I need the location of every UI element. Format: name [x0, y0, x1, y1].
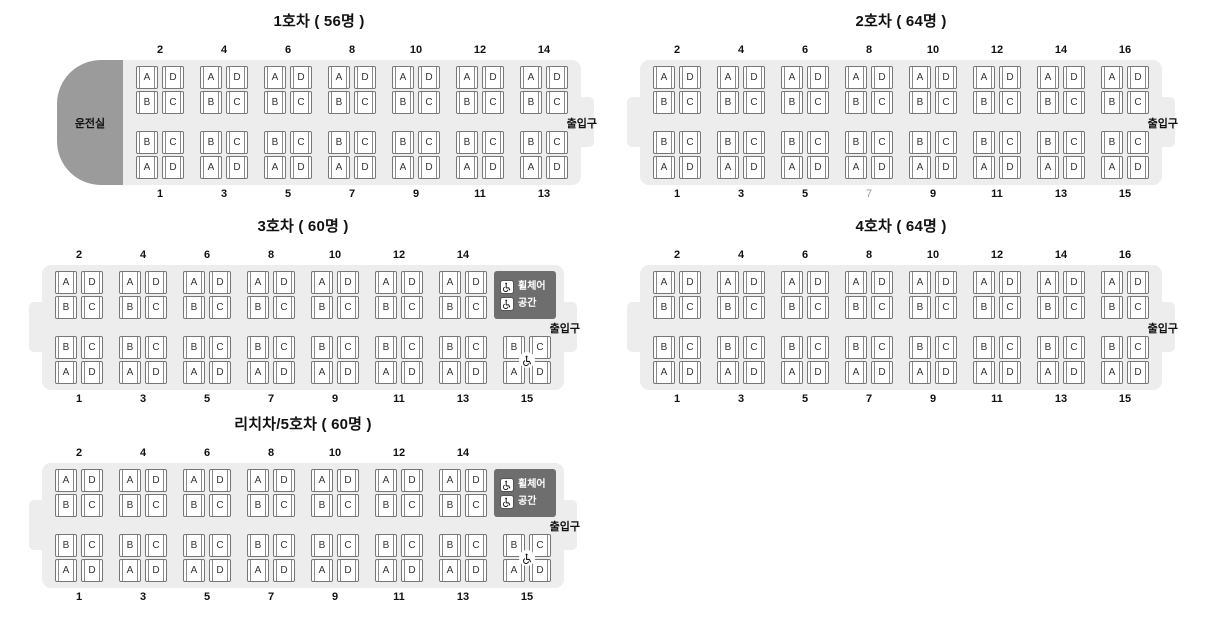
seat[interactable]: D — [465, 559, 487, 582]
seat[interactable]: B — [1101, 296, 1123, 319]
seat[interactable]: A — [1037, 66, 1059, 89]
seat[interactable]: B — [1037, 336, 1059, 359]
seat[interactable]: A — [845, 66, 867, 89]
seat[interactable]: B — [247, 336, 269, 359]
seat[interactable]: A — [439, 271, 461, 294]
seat[interactable]: A — [456, 156, 478, 179]
seat[interactable]: D — [871, 361, 893, 384]
seat[interactable]: A — [183, 271, 205, 294]
seat[interactable]: A — [653, 66, 675, 89]
seat[interactable]: D — [401, 469, 423, 492]
seat[interactable]: C — [209, 534, 231, 557]
seat[interactable]: B — [392, 91, 414, 114]
seat[interactable]: B — [328, 91, 350, 114]
seat[interactable]: C — [273, 296, 295, 319]
seat[interactable]: A — [973, 361, 995, 384]
seat[interactable]: D — [999, 361, 1021, 384]
seat[interactable]: B — [909, 336, 931, 359]
seat[interactable]: C — [482, 91, 504, 114]
seat[interactable]: C — [1063, 296, 1085, 319]
seat[interactable]: B — [264, 91, 286, 114]
seat[interactable]: D — [209, 361, 231, 384]
seat[interactable]: B — [909, 131, 931, 154]
seat[interactable]: A — [375, 559, 397, 582]
seat[interactable]: C — [209, 296, 231, 319]
seat[interactable]: C — [935, 296, 957, 319]
seat[interactable]: A — [845, 271, 867, 294]
seat[interactable]: B — [781, 91, 803, 114]
seat[interactable]: D — [273, 361, 295, 384]
seat[interactable]: C — [354, 131, 376, 154]
seat[interactable]: A — [1037, 156, 1059, 179]
seat[interactable]: A — [520, 156, 542, 179]
seat[interactable]: C — [743, 131, 765, 154]
seat[interactable]: A — [520, 66, 542, 89]
seat[interactable]: C — [999, 336, 1021, 359]
seat[interactable]: A — [439, 469, 461, 492]
seat[interactable]: A — [439, 361, 461, 384]
seat[interactable]: D — [743, 156, 765, 179]
seat[interactable]: D — [226, 156, 248, 179]
seat[interactable]: A — [247, 559, 269, 582]
seat[interactable]: C — [465, 296, 487, 319]
seat[interactable]: C — [418, 91, 440, 114]
seat[interactable]: D — [743, 361, 765, 384]
seat[interactable]: A — [200, 66, 222, 89]
seat[interactable]: C — [209, 336, 231, 359]
seat[interactable]: B — [119, 494, 141, 517]
seat[interactable]: A — [717, 66, 739, 89]
seat[interactable]: B — [200, 131, 222, 154]
seat[interactable]: B — [136, 91, 158, 114]
seat[interactable]: D — [290, 66, 312, 89]
seat[interactable]: D — [935, 361, 957, 384]
seat[interactable]: C — [743, 336, 765, 359]
seat[interactable]: B — [439, 296, 461, 319]
seat[interactable]: B — [781, 296, 803, 319]
seat[interactable]: B — [973, 131, 995, 154]
seat[interactable]: B — [1101, 336, 1123, 359]
seat[interactable]: D — [81, 361, 103, 384]
seat[interactable]: B — [781, 131, 803, 154]
seat[interactable]: C — [807, 131, 829, 154]
seat[interactable]: B — [1101, 131, 1123, 154]
seat[interactable]: A — [119, 469, 141, 492]
seat[interactable]: A — [328, 156, 350, 179]
seat[interactable]: C — [418, 131, 440, 154]
seat[interactable]: D — [465, 271, 487, 294]
seat[interactable]: C — [807, 336, 829, 359]
seat[interactable]: C — [482, 131, 504, 154]
seat[interactable]: D — [354, 156, 376, 179]
seat[interactable]: C — [465, 336, 487, 359]
seat[interactable]: A — [1101, 156, 1123, 179]
seat[interactable]: A — [653, 271, 675, 294]
seat[interactable]: C — [209, 494, 231, 517]
seat[interactable]: C — [337, 336, 359, 359]
seat[interactable]: D — [999, 156, 1021, 179]
seat[interactable]: A — [973, 271, 995, 294]
seat[interactable]: A — [909, 271, 931, 294]
seat[interactable]: A — [200, 156, 222, 179]
seat[interactable]: D — [337, 559, 359, 582]
seat[interactable]: C — [162, 91, 184, 114]
seat[interactable]: D — [999, 271, 1021, 294]
seat[interactable]: B — [717, 296, 739, 319]
seat[interactable]: B — [973, 296, 995, 319]
seat[interactable]: B — [653, 336, 675, 359]
seat[interactable]: D — [81, 559, 103, 582]
seat[interactable]: C — [273, 494, 295, 517]
seat[interactable]: D — [145, 559, 167, 582]
seat[interactable]: C — [337, 296, 359, 319]
seat[interactable]: C — [401, 296, 423, 319]
seat[interactable]: C — [145, 336, 167, 359]
seat[interactable]: D — [807, 361, 829, 384]
seat-column-number: 3 — [114, 591, 172, 604]
seat[interactable]: D — [546, 156, 568, 179]
seat[interactable]: A — [264, 156, 286, 179]
seat[interactable]: B — [1037, 131, 1059, 154]
seat[interactable]: B — [717, 91, 739, 114]
seat[interactable]: C — [337, 534, 359, 557]
seat[interactable]: C — [679, 296, 701, 319]
seat[interactable]: D — [162, 156, 184, 179]
seat[interactable]: B — [247, 296, 269, 319]
seat[interactable]: B — [439, 336, 461, 359]
seat[interactable]: B — [1037, 296, 1059, 319]
seat[interactable]: A — [392, 156, 414, 179]
seat[interactable]: C — [999, 91, 1021, 114]
seat[interactable]: A — [328, 66, 350, 89]
seat[interactable]: C — [1063, 336, 1085, 359]
seat[interactable]: D — [482, 66, 504, 89]
seat[interactable]: C — [337, 494, 359, 517]
seat[interactable]: B — [520, 131, 542, 154]
seat[interactable]: A — [375, 271, 397, 294]
seat[interactable]: D — [209, 469, 231, 492]
seat[interactable]: B — [183, 494, 205, 517]
seat[interactable]: B — [456, 91, 478, 114]
seat[interactable]: D — [290, 156, 312, 179]
seat[interactable]: D — [81, 469, 103, 492]
seat[interactable]: D — [743, 271, 765, 294]
seat[interactable]: C — [145, 296, 167, 319]
seat[interactable]: C — [354, 91, 376, 114]
seat[interactable]: A — [781, 156, 803, 179]
seat[interactable]: B — [200, 91, 222, 114]
seat[interactable]: B — [439, 534, 461, 557]
seat[interactable]: D — [871, 156, 893, 179]
seat[interactable]: B — [119, 336, 141, 359]
seat[interactable]: A — [247, 271, 269, 294]
seat[interactable]: D — [337, 469, 359, 492]
seat[interactable]: C — [743, 91, 765, 114]
seat[interactable]: B — [55, 494, 77, 517]
seat[interactable]: A — [973, 156, 995, 179]
seat[interactable]: B — [1037, 91, 1059, 114]
seat[interactable]: C — [871, 131, 893, 154]
seat[interactable]: C — [743, 296, 765, 319]
seat[interactable]: C — [81, 494, 103, 517]
seat[interactable]: A — [375, 469, 397, 492]
seat[interactable]: C — [546, 131, 568, 154]
seat-row: BC — [183, 296, 231, 319]
seat[interactable]: D — [418, 156, 440, 179]
seat[interactable]: B — [264, 131, 286, 154]
seat[interactable]: B — [653, 131, 675, 154]
seat[interactable]: A — [717, 156, 739, 179]
seat[interactable]: C — [999, 131, 1021, 154]
seat[interactable]: A — [136, 66, 158, 89]
seat[interactable]: D — [1127, 361, 1149, 384]
seat[interactable]: B — [520, 91, 542, 114]
seat[interactable]: D — [162, 66, 184, 89]
seat[interactable]: B — [845, 131, 867, 154]
seat[interactable]: C — [273, 534, 295, 557]
seat[interactable]: D — [679, 156, 701, 179]
seat[interactable]: D — [209, 271, 231, 294]
seat[interactable]: C — [1127, 296, 1149, 319]
seat[interactable]: C — [273, 336, 295, 359]
seat[interactable]: D — [807, 271, 829, 294]
seat[interactable]: A — [183, 559, 205, 582]
seat[interactable]: A — [311, 559, 333, 582]
seat[interactable]: B — [909, 296, 931, 319]
seat[interactable]: C — [1127, 336, 1149, 359]
seat[interactable]: B — [55, 336, 77, 359]
seat[interactable]: D — [935, 66, 957, 89]
seat[interactable]: B — [653, 296, 675, 319]
seat-pair-column: BCAD — [434, 336, 492, 384]
seat[interactable]: D — [871, 66, 893, 89]
seat[interactable]: A — [717, 361, 739, 384]
seat[interactable]: C — [1127, 131, 1149, 154]
seat[interactable]: C — [935, 336, 957, 359]
seat[interactable]: B — [781, 336, 803, 359]
seat[interactable]: D — [482, 156, 504, 179]
seat[interactable]: C — [935, 91, 957, 114]
seat[interactable]: B — [717, 336, 739, 359]
seat[interactable]: A — [392, 66, 414, 89]
seat[interactable]: A — [119, 361, 141, 384]
seat[interactable]: D — [807, 156, 829, 179]
seat[interactable]: D — [354, 66, 376, 89]
seat[interactable]: D — [807, 66, 829, 89]
seat[interactable]: C — [679, 91, 701, 114]
seat[interactable]: B — [392, 131, 414, 154]
seat[interactable]: D — [226, 66, 248, 89]
seat[interactable]: A — [183, 469, 205, 492]
seat[interactable]: D — [743, 66, 765, 89]
seat[interactable]: C — [145, 534, 167, 557]
seat[interactable]: A — [909, 66, 931, 89]
seat[interactable]: B — [119, 534, 141, 557]
seat[interactable]: B — [845, 296, 867, 319]
seat[interactable]: A — [909, 156, 931, 179]
seat[interactable]: A — [845, 361, 867, 384]
seat[interactable]: A — [55, 559, 77, 582]
seat[interactable]: D — [465, 469, 487, 492]
seat[interactable]: A — [119, 559, 141, 582]
seat[interactable]: D — [145, 271, 167, 294]
seat[interactable]: B — [247, 534, 269, 557]
seat[interactable]: C — [81, 296, 103, 319]
seat[interactable]: D — [935, 156, 957, 179]
seat[interactable]: B — [55, 534, 77, 557]
seat[interactable]: C — [807, 296, 829, 319]
seat[interactable]: B — [375, 336, 397, 359]
seat[interactable]: D — [465, 361, 487, 384]
seat[interactable]: D — [1127, 271, 1149, 294]
seat[interactable]: B — [845, 91, 867, 114]
seat[interactable]: D — [145, 469, 167, 492]
seat[interactable]: D — [999, 66, 1021, 89]
seat[interactable]: A — [311, 361, 333, 384]
seat[interactable]: C — [871, 296, 893, 319]
seat[interactable]: A — [1101, 361, 1123, 384]
seat[interactable]: D — [1063, 66, 1085, 89]
seat[interactable]: A — [55, 469, 77, 492]
seat[interactable]: C — [679, 336, 701, 359]
seat[interactable]: B — [845, 336, 867, 359]
seat[interactable]: C — [871, 336, 893, 359]
seat[interactable]: B — [311, 494, 333, 517]
seat[interactable]: A — [781, 66, 803, 89]
seat[interactable]: A — [55, 361, 77, 384]
seat[interactable]: D — [145, 361, 167, 384]
seat[interactable]: D — [401, 559, 423, 582]
seat[interactable]: C — [145, 494, 167, 517]
seat[interactable]: D — [1063, 156, 1085, 179]
seat[interactable]: C — [935, 131, 957, 154]
seat[interactable]: C — [1063, 131, 1085, 154]
seat[interactable]: D — [679, 66, 701, 89]
seat[interactable]: B — [375, 494, 397, 517]
seat[interactable]: A — [781, 361, 803, 384]
seat[interactable]: A — [909, 361, 931, 384]
seat[interactable]: D — [546, 66, 568, 89]
seat[interactable]: D — [1127, 66, 1149, 89]
seat[interactable]: A — [375, 361, 397, 384]
seat[interactable]: D — [273, 469, 295, 492]
seat[interactable]: A — [311, 271, 333, 294]
seat[interactable]: D — [337, 271, 359, 294]
seat[interactable]: C — [1063, 91, 1085, 114]
seat[interactable]: C — [81, 336, 103, 359]
seat[interactable]: B — [653, 91, 675, 114]
seat[interactable]: D — [1127, 156, 1149, 179]
seat[interactable]: B — [183, 534, 205, 557]
seat[interactable]: C — [465, 534, 487, 557]
seat[interactable]: D — [209, 559, 231, 582]
seat[interactable]: B — [1101, 91, 1123, 114]
seat[interactable]: B — [439, 494, 461, 517]
seat[interactable]: C — [546, 91, 568, 114]
seat[interactable]: A — [973, 66, 995, 89]
seat[interactable]: B — [183, 296, 205, 319]
seat[interactable]: C — [465, 494, 487, 517]
seat[interactable]: A — [439, 559, 461, 582]
seat[interactable]: D — [81, 271, 103, 294]
seat[interactable]: D — [401, 271, 423, 294]
seat[interactable]: B — [717, 131, 739, 154]
seat[interactable]: D — [337, 361, 359, 384]
seat[interactable]: D — [273, 559, 295, 582]
seat[interactable]: B — [328, 131, 350, 154]
seat[interactable]: B — [973, 336, 995, 359]
seat[interactable]: C — [226, 91, 248, 114]
seat[interactable]: C — [81, 534, 103, 557]
seat[interactable]: A — [183, 361, 205, 384]
seat[interactable]: A — [247, 361, 269, 384]
seat[interactable]: B — [55, 296, 77, 319]
seat[interactable]: A — [456, 66, 478, 89]
seat[interactable]: C — [679, 131, 701, 154]
seat[interactable]: C — [1127, 91, 1149, 114]
seat[interactable]: D — [1063, 271, 1085, 294]
seat[interactable]: A — [1101, 271, 1123, 294]
seat[interactable]: D — [418, 66, 440, 89]
seat[interactable]: B — [456, 131, 478, 154]
seat[interactable]: C — [401, 534, 423, 557]
seat[interactable]: C — [401, 494, 423, 517]
seat[interactable]: B — [909, 91, 931, 114]
seat[interactable]: C — [290, 131, 312, 154]
seat[interactable]: A — [653, 156, 675, 179]
seat[interactable]: C — [871, 91, 893, 114]
seat[interactable]: A — [55, 271, 77, 294]
seat[interactable]: D — [273, 271, 295, 294]
seat[interactable]: C — [999, 296, 1021, 319]
seat[interactable]: A — [781, 271, 803, 294]
seat[interactable]: B — [247, 494, 269, 517]
seat[interactable]: C — [162, 131, 184, 154]
seat[interactable]: B — [973, 91, 995, 114]
seat[interactable]: B — [311, 296, 333, 319]
seat[interactable]: A — [311, 469, 333, 492]
seat[interactable]: A — [1037, 271, 1059, 294]
seat[interactable]: C — [401, 336, 423, 359]
seat[interactable]: D — [679, 361, 701, 384]
seat[interactable]: A — [717, 271, 739, 294]
seat[interactable]: D — [679, 271, 701, 294]
seat[interactable]: A — [264, 66, 286, 89]
seat[interactable]: A — [119, 271, 141, 294]
seat[interactable]: B — [311, 336, 333, 359]
seat[interactable]: B — [375, 296, 397, 319]
seat[interactable]: A — [653, 361, 675, 384]
seat[interactable]: A — [1037, 361, 1059, 384]
seat[interactable]: D — [401, 361, 423, 384]
seat[interactable]: A — [136, 156, 158, 179]
seat[interactable]: B — [136, 131, 158, 154]
seat[interactable]: B — [375, 534, 397, 557]
seat[interactable]: B — [183, 336, 205, 359]
seat[interactable]: D — [935, 271, 957, 294]
seat[interactable]: B — [311, 534, 333, 557]
seat[interactable]: D — [871, 271, 893, 294]
seat[interactable]: B — [119, 296, 141, 319]
seat[interactable]: C — [226, 131, 248, 154]
seat[interactable]: A — [845, 156, 867, 179]
seat[interactable]: C — [807, 91, 829, 114]
seat[interactable]: D — [1063, 361, 1085, 384]
seat[interactable]: A — [247, 469, 269, 492]
seat[interactable]: A — [1101, 66, 1123, 89]
seat-row: BC — [55, 534, 103, 557]
seat[interactable]: C — [290, 91, 312, 114]
